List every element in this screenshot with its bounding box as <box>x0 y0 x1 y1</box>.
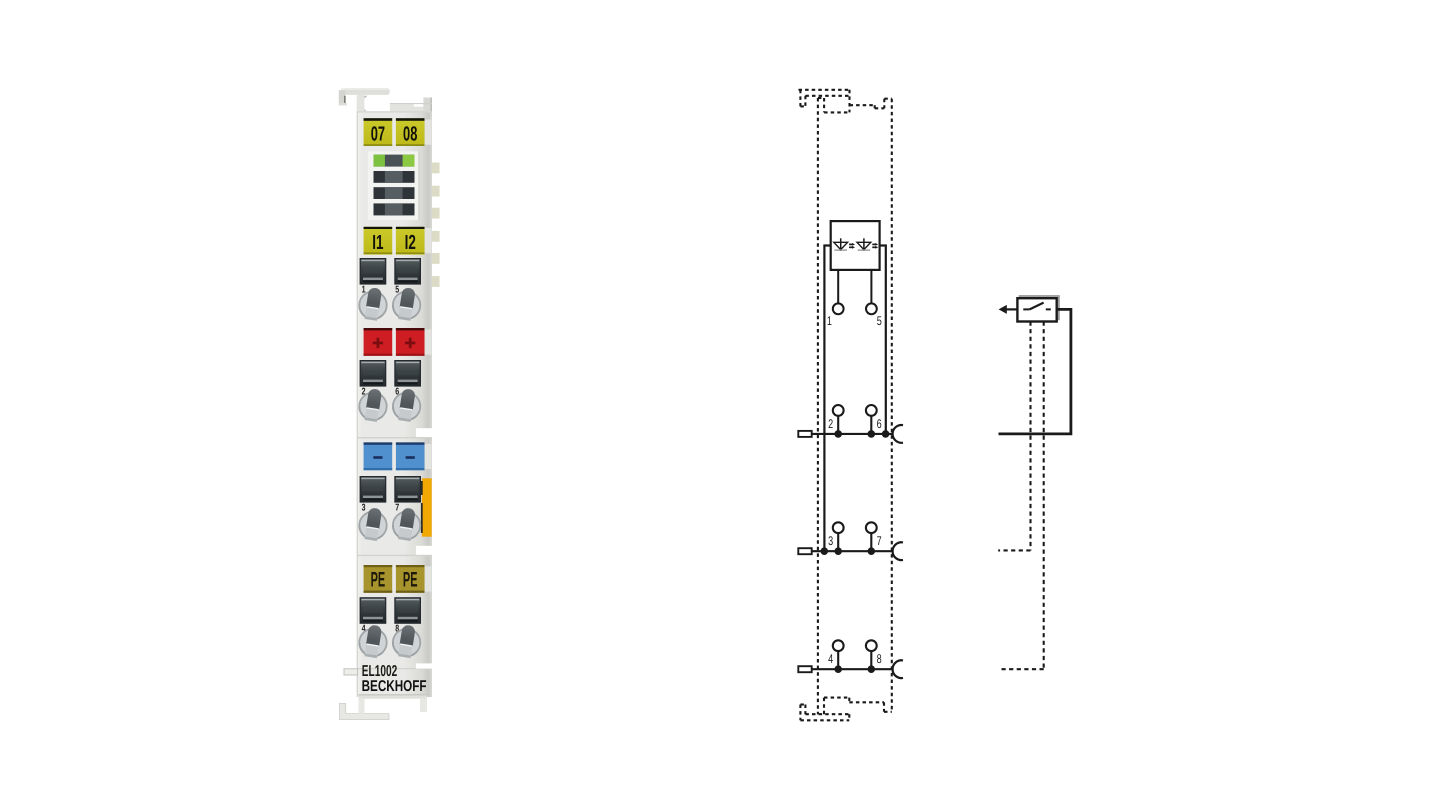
svg-text:7: 7 <box>877 534 882 548</box>
svg-text:2: 2 <box>828 417 833 431</box>
svg-text:08: 08 <box>403 123 417 145</box>
svg-text:3: 3 <box>362 503 366 514</box>
svg-text:1: 1 <box>827 314 832 328</box>
svg-text:7: 7 <box>395 503 399 514</box>
svg-text:4: 4 <box>828 652 833 666</box>
svg-text:PE: PE <box>371 569 386 592</box>
svg-text:8: 8 <box>877 652 882 666</box>
svg-text:07: 07 <box>371 123 385 145</box>
svg-text:PE: PE <box>403 569 418 592</box>
svg-text:6: 6 <box>877 417 882 431</box>
svg-text:3: 3 <box>828 534 833 548</box>
svg-text:I2: I2 <box>405 232 416 254</box>
svg-text:I1: I1 <box>372 232 383 254</box>
svg-text:5: 5 <box>877 314 882 328</box>
svg-text:BECKHOFF: BECKHOFF <box>362 678 427 695</box>
